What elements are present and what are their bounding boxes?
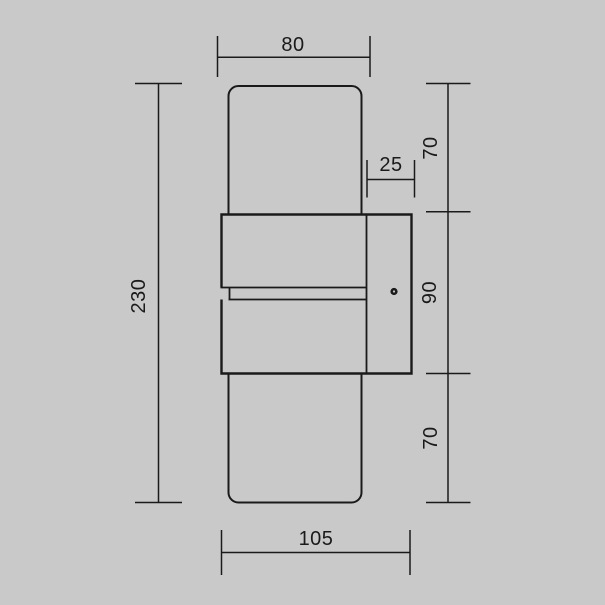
dim-overall-height: 230 bbox=[128, 84, 182, 503]
lamp-outline bbox=[221, 86, 412, 503]
dim-bracket-depth: 25 bbox=[367, 154, 415, 198]
wall-lamp-drawing: 80 230 70 90 70 25 bbox=[0, 0, 605, 605]
dim-bracket-depth-label: 25 bbox=[379, 154, 402, 176]
dim-top-width: 80 bbox=[218, 34, 371, 77]
dim-body-section-label: 90 bbox=[419, 281, 441, 304]
technical-drawing-canvas: 80 230 70 90 70 25 bbox=[0, 0, 605, 605]
dim-upper-section-label: 70 bbox=[420, 136, 442, 159]
dim-bottom-width: 105 bbox=[222, 528, 411, 575]
dim-bottom-width-label: 105 bbox=[299, 528, 334, 550]
dim-overall-height-label: 230 bbox=[128, 279, 150, 314]
body-outline bbox=[222, 215, 412, 374]
dim-top-width-label: 80 bbox=[281, 34, 304, 56]
screw-center-dot bbox=[393, 290, 395, 292]
dim-right-section-stack: 70 90 70 bbox=[419, 84, 471, 503]
bottom-diffuser-outline bbox=[229, 375, 362, 503]
dim-lower-section-label: 70 bbox=[420, 426, 442, 449]
top-diffuser-outline bbox=[229, 86, 362, 214]
